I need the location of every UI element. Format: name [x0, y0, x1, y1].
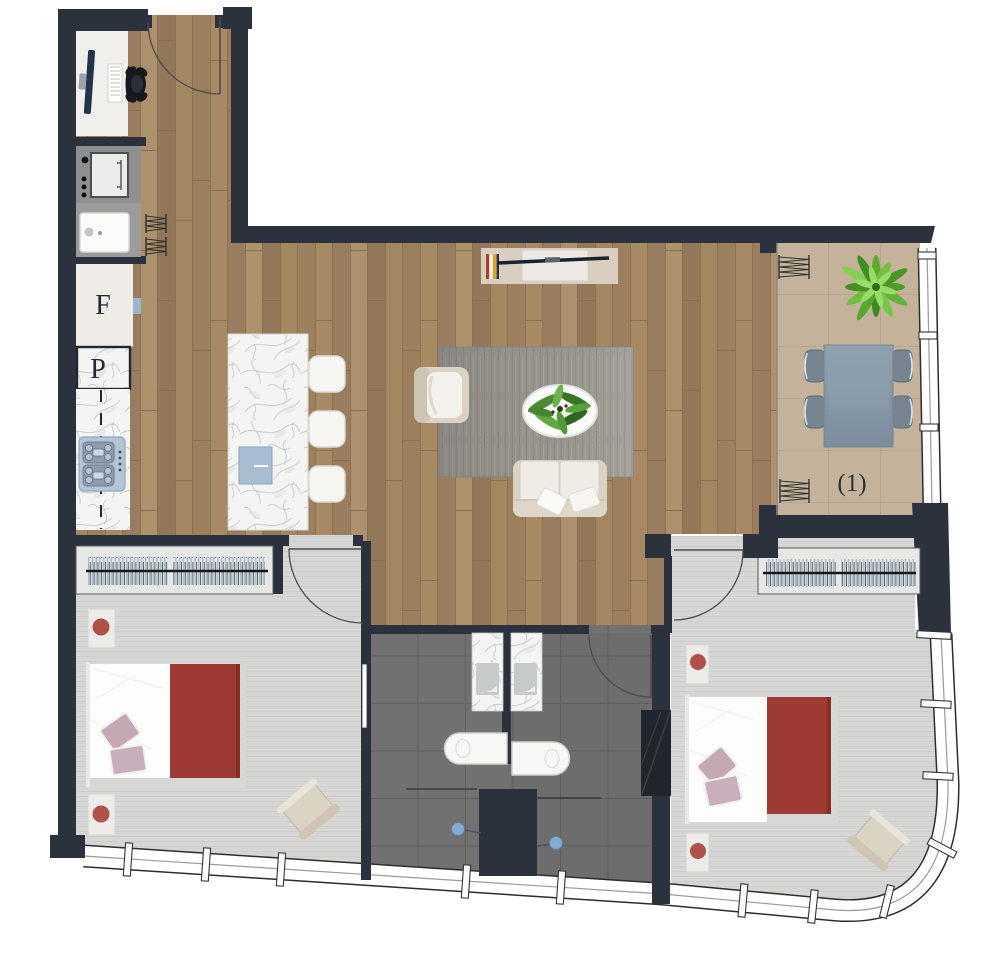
- svg-text:P: P: [90, 354, 106, 385]
- svg-text:F: F: [95, 290, 111, 321]
- svg-text:(1): (1): [837, 470, 866, 497]
